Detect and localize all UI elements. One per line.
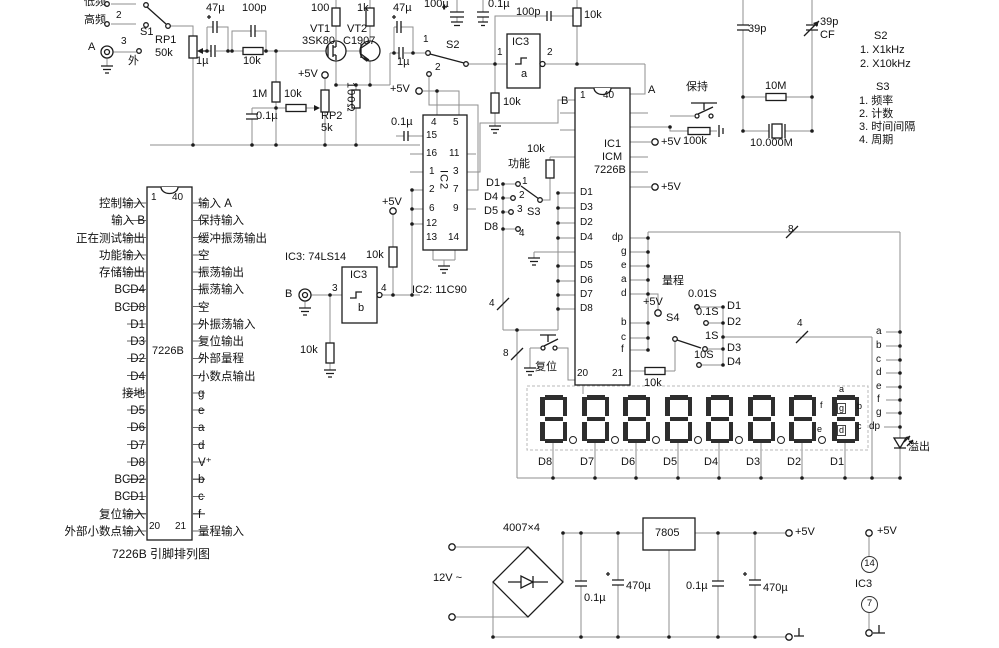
segment (832, 397, 837, 416)
decimal-point (777, 436, 785, 444)
overflow-led-icon (894, 438, 906, 448)
s4-time3: 1S (705, 330, 718, 343)
segment (688, 397, 693, 416)
seg-e: e (876, 381, 882, 393)
pinout-left-pin-6: BCD4 (18, 282, 145, 299)
pinout-left-pin-1: 控制输入 (18, 196, 145, 213)
ic3a-label: IC3 (512, 36, 529, 49)
ic3b-label: IC3 (350, 269, 367, 282)
ic2-pin12: 12 (426, 218, 437, 230)
segment (563, 422, 568, 441)
s3-num2: 2 (519, 190, 525, 202)
bus4-right: 4 (797, 318, 803, 330)
resistor-1m (272, 82, 280, 102)
s2-pos1-num: 1 (423, 34, 429, 46)
segment (628, 439, 646, 444)
seven-segment-digit-D2 (789, 395, 816, 443)
seven-segment-digit-D3 (748, 395, 775, 443)
ic1-pin1: 1 (580, 90, 586, 102)
ic2-pin2: 2 (429, 184, 435, 196)
segment (794, 417, 812, 422)
cap-01u-3: 0.1µ (391, 116, 413, 129)
segment (748, 397, 753, 416)
segment (628, 417, 646, 422)
ic3-power-5v: +5V (877, 525, 897, 538)
decimal-point (569, 436, 577, 444)
s4-time1: 0.01S (688, 288, 717, 301)
segment (789, 397, 794, 416)
segment (729, 422, 734, 441)
s3-num3: 3 (517, 204, 523, 216)
vt1-type: 3SK80 (302, 35, 335, 48)
pinout-pin1: 1 (151, 192, 157, 204)
s3-d4: D4 (484, 191, 498, 204)
d1-seg-b: b (857, 401, 862, 411)
res-1m: 1M (252, 88, 267, 101)
bus8-left: 8 (503, 348, 509, 360)
ic1-name: IC1 (604, 138, 621, 151)
ic1-b-label: B (561, 95, 568, 108)
cap-100p-1: 100p (242, 2, 266, 15)
res-10k-5: 10k (366, 249, 384, 262)
pinout-chip: 7226B (152, 345, 184, 358)
hold-label: 保持 (686, 81, 708, 94)
seven-segment-digit-D5 (665, 395, 692, 443)
ic2-type: IC2: 11C90 (412, 284, 467, 297)
input-a-connector (101, 46, 113, 58)
legend-s3-1: 1. 频率 (859, 95, 893, 108)
decimal-point (652, 436, 660, 444)
s3-d5: D5 (484, 205, 498, 218)
cap-cf: CF (820, 29, 835, 42)
ic1-e: e (621, 260, 627, 272)
ic2-pin3: 3 (453, 166, 459, 178)
psu-input: 12V ~ (433, 572, 462, 585)
seg-a: a (876, 326, 882, 338)
pinout-pin21: 21 (175, 521, 186, 533)
ic2-pin11: 11 (449, 148, 459, 160)
ic2-pin15: 15 (426, 130, 437, 142)
resistor-10k-2 (286, 105, 306, 112)
digit-label-D6: D6 (621, 456, 635, 469)
ic1-sb: b (621, 317, 627, 329)
pinout-pin40: 40 (172, 192, 183, 204)
cap-1u-2: 1µ (397, 56, 409, 69)
xtal-value: 10.000M (750, 137, 793, 150)
s3-num4: 4 (519, 228, 525, 240)
s4-d2: D2 (727, 316, 741, 329)
cap-39p-2: 39p (820, 16, 838, 29)
segment (587, 395, 605, 400)
s1-pos2-label: 高频 (84, 14, 106, 27)
segment (545, 439, 563, 444)
ic3a-sub: a (521, 68, 527, 81)
ic1-d2: D2 (580, 217, 593, 229)
s4-d3: D3 (727, 342, 741, 355)
segment (623, 397, 628, 416)
ic1-sa: a (621, 274, 627, 286)
pinout-left-pin-3: 正在测试输出 (18, 231, 145, 248)
pinout-right-pin-15: d (198, 438, 338, 455)
pinout-right-pin-5: 振荡输出 (198, 265, 338, 282)
bus8-right: 8 (788, 224, 794, 236)
ic1-pin40: 40 (603, 90, 614, 102)
segment (605, 397, 610, 416)
res-1k: 1k (357, 2, 369, 15)
digit-label-D2: D2 (787, 456, 801, 469)
rp2-label: RP2 (321, 110, 342, 123)
d1-seg-f: f (820, 400, 823, 410)
psu-cap4: 470µ (763, 582, 788, 595)
ic1-name2: ICM (602, 151, 622, 164)
digit-label-D3: D3 (746, 456, 760, 469)
ic2-pin16: 16 (426, 148, 437, 160)
ic2-pin9: 9 (453, 203, 459, 215)
s1-pos1-label: 低频 (84, 0, 106, 9)
s1-pos2-num: 2 (116, 10, 122, 22)
segment (582, 397, 587, 416)
pinout-left-pin-4: 功能输入 (18, 248, 145, 265)
pinout-right-pin-17: b (198, 472, 338, 489)
ic1-sf: f (621, 344, 624, 356)
ic1-d4: D4 (580, 232, 593, 244)
ic1-pin20: 20 (577, 368, 588, 380)
pinout-right-pin-11: 小数点输出 (198, 369, 338, 386)
pinout-left-pin-13: D5 (18, 403, 145, 420)
d1-seg-a: a (839, 384, 844, 394)
segment (646, 422, 651, 441)
seg-f: f (877, 394, 880, 406)
res-10k-3: 10k (584, 9, 602, 22)
pinout-pin20: 20 (149, 521, 160, 533)
pinout-left-pin-9: D3 (18, 334, 145, 351)
psu-5v: +5V (795, 526, 815, 539)
segment (794, 439, 812, 444)
legend-s3-3: 3. 时间间隔 (859, 121, 915, 134)
segment (605, 422, 610, 441)
pinout-caption: 7226B 引脚排列图 (112, 548, 210, 562)
digit-label-D1: D1 (830, 456, 844, 469)
pinout-right-pin-7: 空 (198, 300, 338, 317)
seg-d: d (876, 367, 882, 379)
ic3-power-label: IC3 (855, 578, 872, 591)
pinout-left-pin-10: D2 (18, 351, 145, 368)
rp2-arrow (314, 105, 320, 111)
ic1-dp: dp (612, 232, 623, 244)
decimal-point (735, 436, 743, 444)
s4-time4: 10S (694, 349, 714, 362)
ic1-a-label: A (648, 84, 655, 97)
ic1-d8: D8 (580, 303, 593, 315)
segment (587, 417, 605, 422)
pinout-right-pin-12: g (198, 386, 338, 403)
segment (711, 417, 729, 422)
ic3b-pin4: 4 (381, 283, 387, 295)
d1-seg-e: e (817, 424, 822, 434)
ic1-d5: D5 (580, 260, 593, 272)
s4-d4: D4 (727, 356, 741, 369)
input-b-label: B (285, 288, 292, 301)
legend-s3-2: 2. 计数 (859, 108, 893, 121)
decimal-point (694, 436, 702, 444)
ic3a-output-bubble (540, 62, 545, 67)
segment (706, 397, 711, 416)
segment (794, 395, 812, 400)
resistor-100k (688, 128, 710, 135)
pinout-left-pin-2: 输入 B (18, 213, 145, 230)
res-10k-2: 10k (284, 88, 302, 101)
pinout-left-pin-5: 存储输出 (18, 265, 145, 282)
s1-pos3-num: 3 (121, 36, 127, 48)
ic3-type: IC3: 74LS14 (285, 251, 346, 264)
s4-time2: 0.1S (696, 306, 719, 319)
segment (711, 439, 729, 444)
psu-bridge: 4007×4 (503, 522, 540, 535)
ic3b-sub: b (358, 302, 364, 315)
p5v-ic1b: +5V (661, 181, 681, 194)
ic3-power-pin7: 7 (861, 596, 878, 613)
seg-b: b (876, 340, 882, 352)
s3-label: S3 (527, 206, 540, 219)
pinout-left-pin-11: D4 (18, 369, 145, 386)
cap-01u-1: 0.1µ (256, 110, 278, 123)
segment (688, 422, 693, 441)
res-10k-1: 10k (243, 55, 261, 68)
reset-label: 复位 (535, 361, 557, 374)
ic2-pin5: 5 (453, 117, 459, 129)
rp2-value: 5k (321, 122, 333, 135)
s3-d1: D1 (486, 177, 500, 190)
s1-pos3-label: 外 (128, 55, 139, 68)
segment (837, 395, 855, 400)
ic3a-pin1: 1 (497, 47, 503, 59)
segment (670, 439, 688, 444)
d1-seg-c: c (857, 421, 862, 431)
bus-slashes (497, 226, 808, 360)
s3-num1: 1 (522, 176, 528, 188)
p5v-seg-d: +5V (643, 296, 663, 309)
segment (771, 422, 776, 441)
pinout-left-pin-12: 接地 (18, 386, 145, 403)
res-10k-8: 10k (644, 377, 662, 390)
vt2-label: VT2 (347, 23, 367, 36)
res-10m: 10M (765, 80, 786, 93)
s1-label: S1 (140, 26, 153, 39)
digit-label-D7: D7 (580, 456, 594, 469)
digit-label-D4: D4 (704, 456, 718, 469)
vt1-label: VT1 (310, 23, 330, 36)
resistor-10k-5 (389, 247, 397, 267)
psu-cap2: 470µ (626, 580, 651, 593)
segment (812, 422, 817, 441)
legend-s2-2: 2. X10kHz (860, 58, 911, 71)
p5v-ic2: +5V (390, 83, 410, 96)
pinout-right-pin-6: 振荡输入 (198, 282, 338, 299)
digit-label-D8: D8 (538, 456, 552, 469)
segment (837, 417, 855, 422)
seg-g: g (876, 407, 882, 419)
pinout-right-pin-14: a (198, 420, 338, 437)
seven-segment-digit-D7 (582, 395, 609, 443)
resistor-10m (766, 94, 786, 101)
input-a-label: A (88, 41, 95, 54)
legend-s2-1: 1. X1kHz (860, 44, 905, 57)
pinout-right-pin-13: e (198, 403, 338, 420)
legend-s3-4: 4. 周期 (859, 134, 893, 147)
p5v-ic1a: +5V (661, 136, 681, 149)
res-100: 100 (311, 2, 329, 15)
segment (771, 397, 776, 416)
ic1-g: g (621, 246, 627, 258)
seven-segment-digit-D4 (706, 395, 733, 443)
psu-reg: 7805 (655, 527, 679, 540)
seven-segment-digit-D6 (623, 395, 650, 443)
seg-dp: dp (869, 421, 880, 433)
ic3b-pin3: 3 (332, 283, 338, 295)
pinout-left-pin-7: BCD8 (18, 300, 145, 317)
psu-cap1: 0.1µ (584, 592, 606, 605)
res-100ohm: 100Ω (344, 82, 357, 113)
cap-01u-2: 0.1µ (488, 0, 510, 11)
d1-seg-g: g (837, 403, 846, 414)
pinout-right-pin-16: V⁺ (198, 455, 338, 472)
pinout-right-pin-8: 外振荡输入 (198, 317, 338, 334)
res-100k: 100k (683, 135, 707, 148)
ic2-pin14: 14 (448, 232, 459, 244)
s2-label: S2 (446, 39, 459, 52)
segment (837, 439, 855, 444)
res-10k-6: 10k (300, 344, 318, 357)
segment (540, 397, 545, 416)
pinout-left-labels: 控制输入输入 B正在测试输出功能输入存储输出BCD4BCD8D1D3D2D4接地… (18, 196, 145, 541)
psu-cap3: 0.1µ (686, 580, 708, 593)
schematic-canvas: 控制输入输入 B正在测试输出功能输入存储输出BCD4BCD8D1D3D2D4接地… (0, 0, 999, 648)
ic1-d1: D1 (580, 187, 593, 199)
pinout-right-pin-19: f (198, 507, 338, 524)
pinout-left-pin-15: D7 (18, 438, 145, 455)
segment (729, 397, 734, 416)
seg-c: c (876, 354, 881, 366)
cap-39p-1: 39p (748, 23, 766, 36)
pinout-right-pin-20: 量程输入 (198, 524, 338, 541)
ic1-d6: D6 (580, 275, 593, 287)
pinout-right-pin-3: 缓冲振荡输出 (198, 231, 338, 248)
bus4-left: 4 (489, 298, 495, 310)
segment (812, 397, 817, 416)
ic2-name: IC2 (437, 170, 450, 190)
s4-label: S4 (666, 312, 679, 325)
legend-s2-title: S2 (874, 30, 887, 43)
cap-100p-2: 100p (516, 6, 540, 19)
ic1-sc: c (621, 332, 626, 344)
resistor-10k-3 (573, 8, 581, 26)
pinout-right-pin-2: 保持输入 (198, 213, 338, 230)
ic1-name3: 7226B (594, 164, 626, 177)
ic1-d3: D3 (580, 202, 593, 214)
segment (670, 395, 688, 400)
s3-d8: D8 (484, 221, 498, 234)
vt2-type: C1907 (343, 35, 375, 48)
s2-pos2-num: 2 (435, 62, 441, 74)
ic1-pin21: 21 (612, 368, 623, 380)
pinout-left-pin-8: D1 (18, 317, 145, 334)
ic2-pin1: 1 (429, 166, 435, 178)
ic2-pin6: 6 (429, 203, 435, 215)
pinout-left-pin-20: 外部小数点输入 (18, 524, 145, 541)
segment (545, 417, 563, 422)
resistor-10k-8 (645, 368, 665, 375)
overflow-label: 溢出 (908, 441, 930, 454)
p5v-rp2: +5V (298, 68, 318, 81)
ic2-pin4: 4 (431, 117, 437, 129)
ic2-pin13: 13 (426, 232, 437, 244)
resistor-100 (332, 8, 340, 26)
resistor-10k-7 (546, 160, 554, 178)
rp1-wiper-arrow (197, 48, 203, 54)
segment (646, 397, 651, 416)
segment (753, 395, 771, 400)
pinout-left-pin-16: D8 (18, 455, 145, 472)
segment (587, 439, 605, 444)
res-10k-7: 10k (527, 143, 545, 156)
decimal-point (611, 436, 619, 444)
cap-47u-1: 47µ (206, 2, 225, 15)
segment (628, 395, 646, 400)
segment (563, 397, 568, 416)
cap-47u-2: 47µ (393, 2, 412, 15)
pinout-left-pin-14: D6 (18, 420, 145, 437)
ic3-power-pin14: 14 (861, 556, 878, 573)
s4-d1: D1 (727, 300, 741, 313)
ic2-pin7: 7 (453, 184, 459, 196)
cap-100u: 100µ (424, 0, 449, 11)
pinout-right-pin-18: c (198, 489, 338, 506)
rp1-label: RP1 (155, 34, 176, 47)
segment (753, 417, 771, 422)
segment (670, 417, 688, 422)
p5v-ic3b: +5V (382, 196, 402, 209)
segment (665, 397, 670, 416)
rp2-potentiometer (321, 90, 329, 112)
pinout-left-pin-18: BCD1 (18, 489, 145, 506)
segment (711, 395, 729, 400)
seven-segment-digit-D8 (540, 395, 567, 443)
rp1-value: 50k (155, 47, 173, 60)
pinout-right-pin-1: 输入 A (198, 196, 338, 213)
legend-s3-title: S3 (876, 81, 889, 94)
pinout-left-pin-17: BCD2 (18, 472, 145, 489)
ic1-d7: D7 (580, 289, 593, 301)
d1-seg-d: d (837, 425, 846, 436)
segment (753, 439, 771, 444)
decimal-point (818, 436, 826, 444)
segment (545, 395, 563, 400)
pinout-left-pin-19: 复位输入 (18, 507, 145, 524)
pinout-right-labels: 输入 A保持输入缓冲振荡输出空振荡输出振荡输入空外振荡输入复位输出外部量程小数点… (198, 196, 338, 541)
resistor-10k-4 (491, 93, 499, 113)
res-10k-4: 10k (503, 96, 521, 109)
ic3a-pin2: 2 (547, 47, 553, 59)
crystal-10mhz (772, 124, 782, 138)
cap-1u-1: 1µ (196, 55, 208, 68)
range-label: 量程 (662, 275, 684, 288)
resistor-10k-1 (243, 48, 263, 55)
pinout-chip-body (147, 187, 192, 540)
digit-label-D5: D5 (663, 456, 677, 469)
func-label: 功能 (508, 158, 530, 171)
ic1-sd: d (621, 288, 627, 300)
